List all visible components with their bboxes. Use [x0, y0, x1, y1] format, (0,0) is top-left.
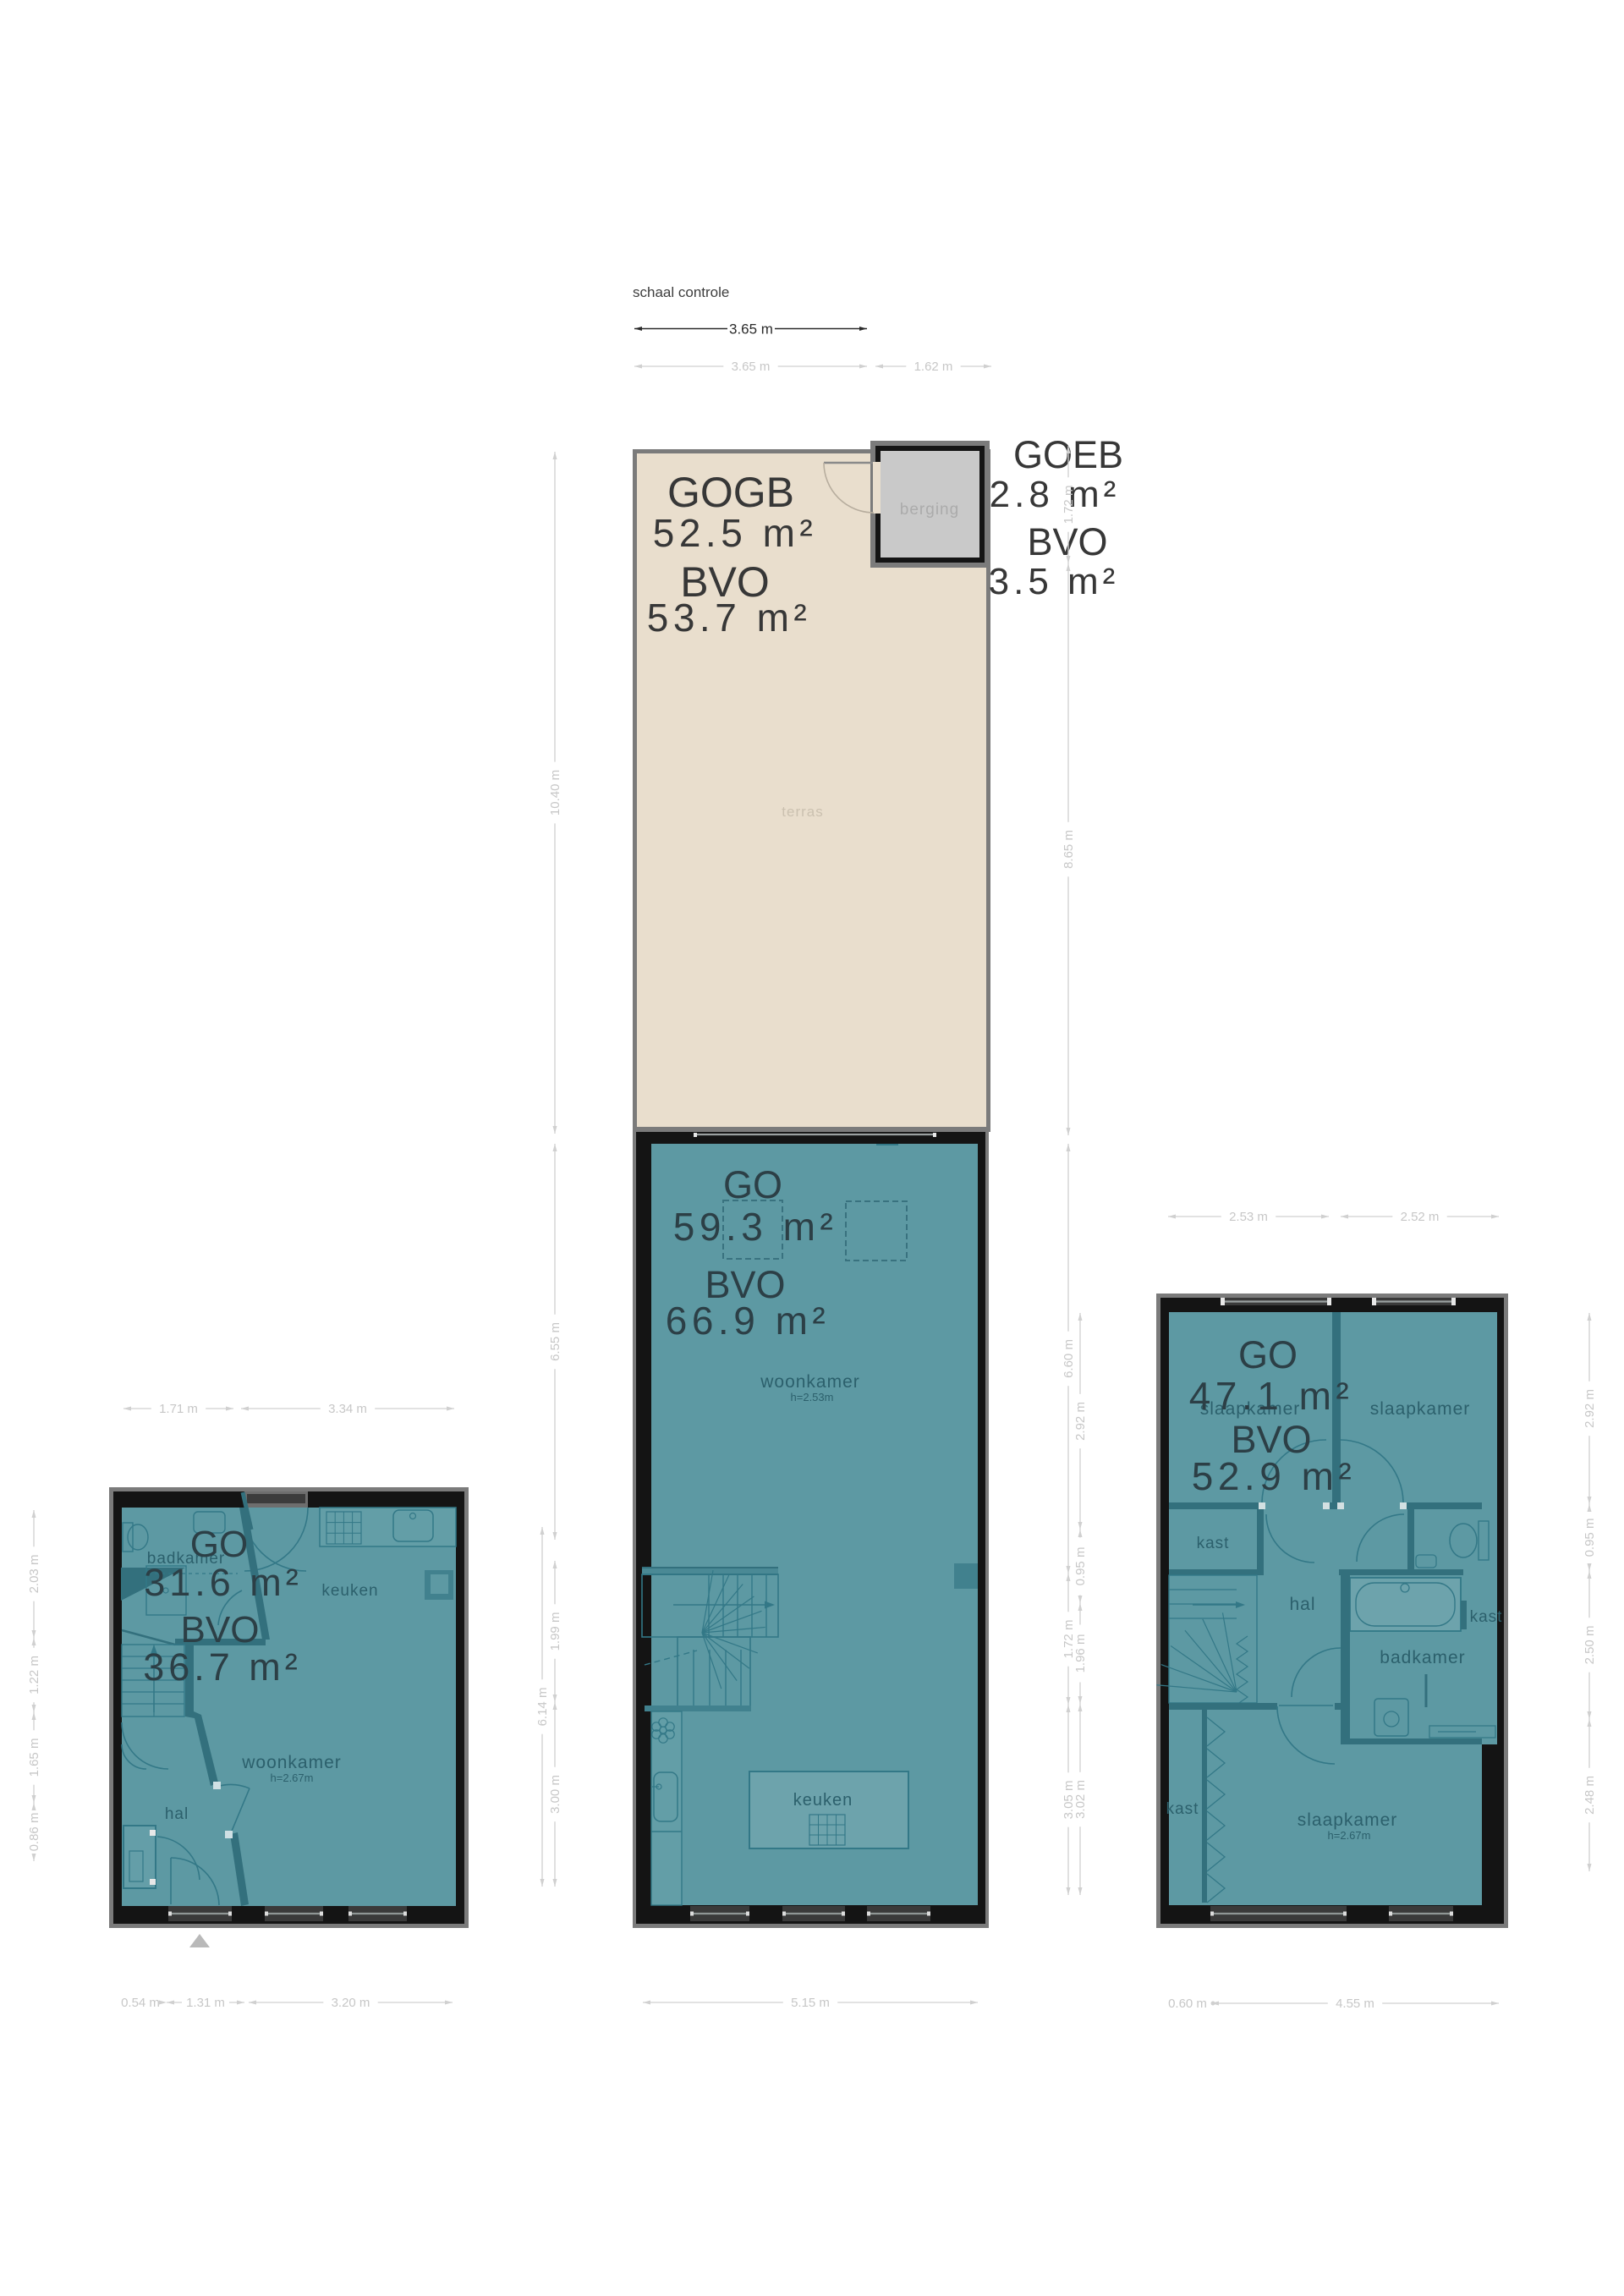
svg-text:3.65 m: 3.65 m — [729, 321, 773, 338]
svg-text:6.55 m: 6.55 m — [548, 1322, 562, 1361]
svg-text:h=2.53m: h=2.53m — [791, 1391, 834, 1403]
svg-text:keuken: keuken — [793, 1791, 853, 1810]
svg-text:1.99 m: 1.99 m — [548, 1612, 562, 1651]
svg-text:badkamer: badkamer — [1380, 1648, 1465, 1667]
svg-text:1.96 m: 1.96 m — [1073, 1634, 1088, 1673]
svg-text:36.7 m²: 36.7 m² — [143, 1645, 302, 1689]
svg-text:hal: hal — [165, 1805, 189, 1823]
svg-text:0.95 m: 0.95 m — [1583, 1519, 1597, 1557]
svg-text:10.40 m: 10.40 m — [548, 770, 562, 816]
svg-text:59.3 m²: 59.3 m² — [673, 1205, 837, 1249]
svg-text:1.62 m: 1.62 m — [914, 360, 953, 374]
svg-text:66.9 m²: 66.9 m² — [666, 1299, 830, 1343]
svg-text:slaapkamer: slaapkamer — [1298, 1810, 1398, 1830]
svg-text:2.50 m: 2.50 m — [1583, 1626, 1597, 1665]
svg-text:0.95 m: 0.95 m — [1073, 1547, 1088, 1586]
svg-text:kast: kast — [1197, 1535, 1230, 1552]
svg-text:53.7 m²: 53.7 m² — [647, 596, 811, 640]
svg-text:3.34 m: 3.34 m — [328, 1402, 367, 1416]
svg-text:6.14 m: 6.14 m — [535, 1688, 550, 1727]
svg-text:3.00 m: 3.00 m — [548, 1775, 562, 1814]
svg-text:31.6 m²: 31.6 m² — [144, 1561, 303, 1604]
svg-text:52.5 m²: 52.5 m² — [653, 511, 817, 555]
svg-text:terras: terras — [782, 804, 823, 820]
svg-text:0.60 m: 0.60 m — [1168, 1997, 1207, 2011]
svg-text:3.5 m²: 3.5 m² — [989, 561, 1120, 602]
svg-text:BVO: BVO — [181, 1609, 260, 1651]
svg-text:GO: GO — [1238, 1333, 1298, 1376]
svg-text:2.48 m: 2.48 m — [1583, 1776, 1597, 1815]
svg-text:2.8 m²: 2.8 m² — [990, 474, 1121, 515]
svg-text:3.02 m: 3.02 m — [1073, 1780, 1088, 1819]
svg-text:h=2.67m: h=2.67m — [271, 1771, 314, 1784]
svg-text:1.72 m: 1.72 m — [1062, 486, 1076, 525]
svg-text:keuken: keuken — [321, 1582, 378, 1600]
svg-text:GO: GO — [190, 1524, 248, 1565]
svg-text:1.65 m: 1.65 m — [27, 1738, 41, 1777]
svg-text:2.03 m: 2.03 m — [27, 1555, 41, 1594]
svg-text:2.92 m: 2.92 m — [1583, 1389, 1597, 1428]
svg-text:kast: kast — [1470, 1608, 1503, 1626]
svg-text:1.22 m: 1.22 m — [27, 1656, 41, 1695]
svg-text:3.20 m: 3.20 m — [332, 1996, 370, 2010]
svg-text:4.55 m: 4.55 m — [1336, 1997, 1374, 2011]
svg-text:kast: kast — [1166, 1800, 1199, 1818]
svg-text:slaapkamer: slaapkamer — [1370, 1399, 1471, 1419]
svg-text:5.15 m: 5.15 m — [791, 1996, 830, 2010]
svg-text:1.71 m: 1.71 m — [159, 1402, 198, 1416]
svg-text:schaal controle: schaal controle — [633, 284, 729, 300]
svg-text:1.31 m: 1.31 m — [186, 1996, 225, 2010]
svg-text:8.65 m: 8.65 m — [1062, 830, 1076, 869]
svg-text:2.52 m: 2.52 m — [1401, 1210, 1440, 1224]
svg-text:h=2.67m: h=2.67m — [1328, 1829, 1371, 1842]
svg-text:2.92 m: 2.92 m — [1073, 1402, 1088, 1441]
svg-text:GOGB: GOGB — [667, 469, 794, 516]
svg-text:0.86 m: 0.86 m — [27, 1813, 41, 1852]
svg-text:woonkamer: woonkamer — [241, 1753, 342, 1772]
svg-text:47.1 m²: 47.1 m² — [1189, 1374, 1353, 1418]
svg-text:0.54 m: 0.54 m — [121, 1996, 160, 2010]
svg-text:woonkamer: woonkamer — [760, 1372, 860, 1392]
svg-text:3.65 m: 3.65 m — [732, 360, 771, 374]
svg-text:6.60 m: 6.60 m — [1062, 1339, 1076, 1378]
svg-text:hal: hal — [1289, 1595, 1315, 1614]
svg-text:berging: berging — [900, 501, 959, 519]
svg-text:2.53 m: 2.53 m — [1229, 1210, 1268, 1224]
svg-text:52.9 m²: 52.9 m² — [1192, 1454, 1356, 1498]
